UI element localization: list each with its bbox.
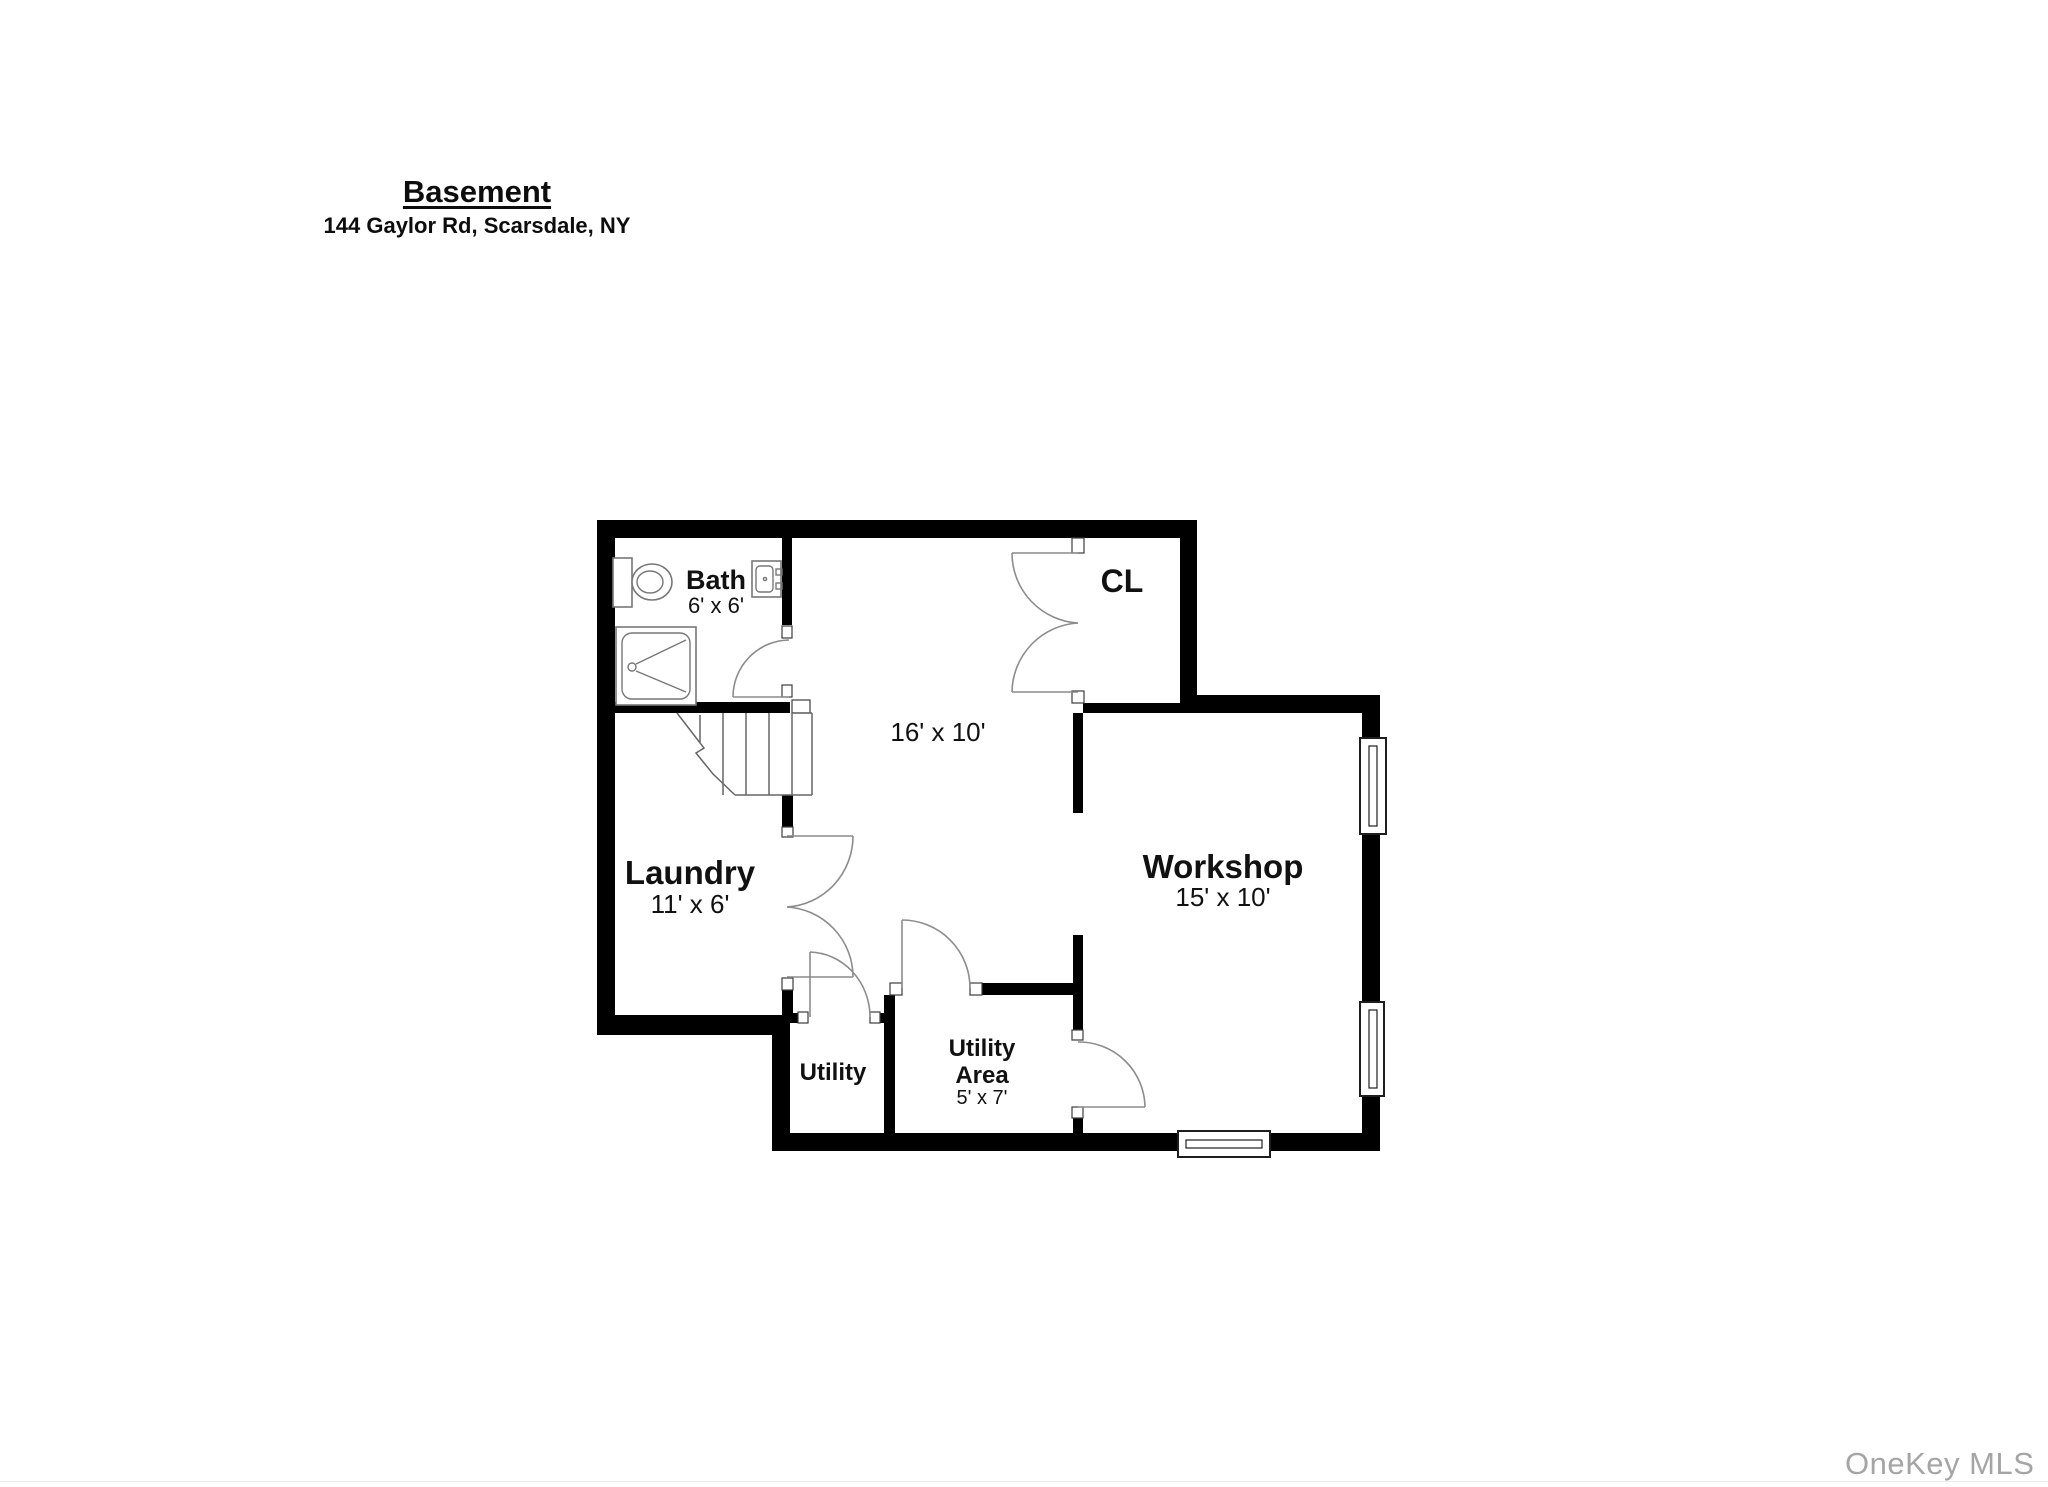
workshop-window-bottom [1178,1131,1270,1157]
wall-laundry-bottom [597,1015,790,1035]
bath-door [733,640,789,697]
closet-label: CL [1101,563,1144,599]
door-jamb [1072,1107,1083,1118]
wall-main-workshop-upper [1073,713,1083,813]
door-jamb [782,685,792,697]
wall-utility-area-right-stub [1073,1118,1083,1135]
door-jamb [782,626,792,638]
wall-exterior-bottom [772,1133,1380,1151]
main-room-dims: 16' x 10' [890,717,985,747]
utility-area-dims: 5' x 7' [957,1087,1008,1109]
wall-workshop-top [1180,695,1380,713]
watermark: OneKey MLS [1845,1446,2045,1482]
laundry-double-door [787,836,853,977]
wall-laundry-right-lower [782,990,793,1015]
workshop-window-right-upper [1360,738,1386,834]
workshop-label: Workshop [1143,848,1304,885]
door-jambs [782,538,1084,1118]
bath-dims: 6' x 6' [688,593,744,618]
workshop-window-right-lower [1360,1002,1384,1096]
doors [733,553,1145,1107]
closet-bifold-door [1012,553,1078,692]
bottom-divider [0,1481,2048,1482]
door-jamb [798,1012,808,1023]
stairs-icon [677,713,812,795]
door-jamb [1072,538,1084,553]
utility-door [810,952,870,1017]
floor-plan-page: Basement 144 Gaylor Rd, Scarsdale, NY [0,0,2048,1487]
door-jamb [870,1012,880,1023]
wall-closet-right [1180,520,1197,713]
shower-icon [616,627,696,705]
stair-landing-post [792,700,810,713]
wall-main-workshop-lower [1073,935,1083,1030]
utility-area-door [902,920,970,988]
utility-area-label-1: Utility [949,1035,1016,1062]
toilet-icon [613,558,672,607]
workshop-door [1078,1042,1145,1107]
sink-icon [752,561,782,597]
wall-closet-bottom [1083,703,1180,713]
workshop-dims: 15' x 10' [1175,882,1270,912]
wall-stair-stub [782,795,793,827]
wall-bath-right [782,538,792,625]
windows [1178,738,1386,1157]
bath-label: Bath [686,565,746,595]
door-jamb [890,983,902,995]
laundry-label: Laundry [625,854,756,891]
wall-utility-top-left-stub [790,1013,798,1023]
wall-utility-area-top [982,983,1073,995]
wall-exterior-top [597,520,1197,538]
utility-area-label-2: Area [955,1062,1009,1089]
laundry-dims: 11' x 6' [651,889,730,919]
door-jamb [782,978,793,990]
door-jamb [1072,1030,1083,1040]
utility-label: Utility [800,1059,867,1086]
floor-plan-drawing: Bath 6' x 6' CL 16' x 10' Laundry 11' x … [0,0,2048,1487]
door-jamb [970,983,982,995]
wall-utility-divider [884,995,895,1135]
